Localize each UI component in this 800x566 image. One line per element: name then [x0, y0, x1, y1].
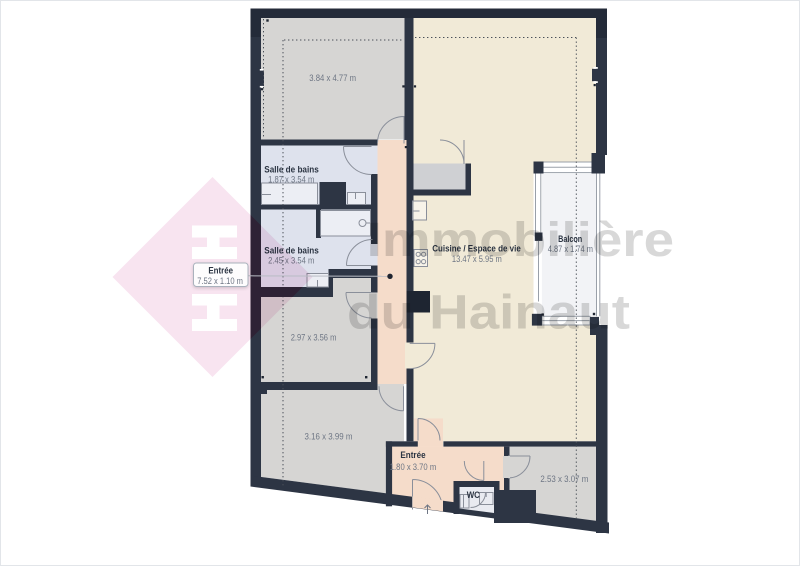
- svg-text:Immobilière: Immobilière: [367, 214, 674, 267]
- svg-text:3.16 x 3.99 m: 3.16 x 3.99 m: [305, 432, 353, 443]
- svg-text:7.52 x 1.10 m: 7.52 x 1.10 m: [197, 276, 243, 286]
- svg-text:3.84 x 4.77 m: 3.84 x 4.77 m: [309, 73, 356, 84]
- svg-text:du Hainaut: du Hainaut: [347, 287, 630, 340]
- svg-text:Entrée: Entrée: [400, 450, 425, 461]
- svg-text:WC: WC: [467, 490, 481, 500]
- svg-text:1.87 x 3.54 m: 1.87 x 3.54 m: [268, 175, 314, 186]
- svg-text:2.53 x 3.07 m: 2.53 x 3.07 m: [540, 474, 588, 485]
- svg-text:Entrée: Entrée: [208, 265, 233, 275]
- svg-text:2.97 x 3.56 m: 2.97 x 3.56 m: [291, 333, 337, 344]
- svg-text:1.80 x 3.70 m: 1.80 x 3.70 m: [390, 462, 436, 473]
